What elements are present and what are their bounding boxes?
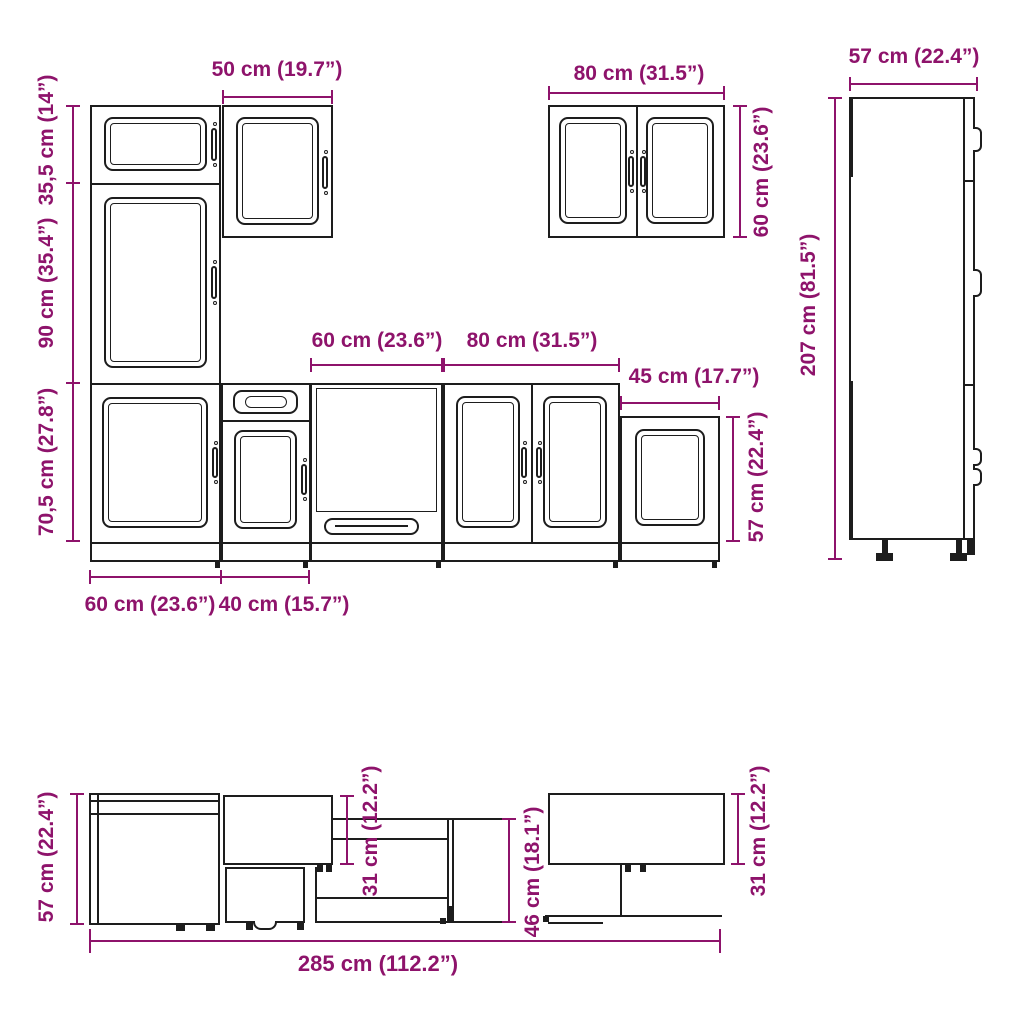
dim-line-285 xyxy=(89,940,721,942)
foot-mark xyxy=(246,923,253,930)
foot-mark xyxy=(440,918,446,924)
dim-label-31-mid: 31 cm (12.2”) xyxy=(359,766,383,897)
countertop-edge xyxy=(89,800,220,802)
front-edge-line xyxy=(315,897,447,899)
panel-line xyxy=(620,865,622,916)
dim-line-31-right xyxy=(737,793,739,865)
countertop-edge xyxy=(89,813,220,815)
plan-view: 57 cm (22.4”) 31 cm (12.2”) 46 cm (18.1”… xyxy=(0,0,1024,1024)
rail-line xyxy=(333,838,447,840)
dim-label-46: 46 cm (18.1”) xyxy=(521,807,545,938)
base-line xyxy=(315,921,447,923)
foot-mark xyxy=(176,925,185,931)
dim-label-57-plan: 57 cm (22.4”) xyxy=(35,792,59,923)
hinge-mark xyxy=(625,865,631,872)
dim-line-57-plan xyxy=(76,793,78,925)
panel-line xyxy=(315,867,317,923)
kitchen-cabinet-dimension-diagram: 50 cm (19.7”) 35,5 cm (14”) 90 cm (35.4”… xyxy=(0,0,1024,1024)
plan-deep-unit-46 xyxy=(447,818,510,923)
foot-mark xyxy=(297,923,304,930)
hinge-mark xyxy=(317,865,323,872)
plan-wall-cabinet-80 xyxy=(548,793,725,865)
dim-line-46 xyxy=(508,818,510,923)
hinge-mark xyxy=(640,865,646,872)
plan-base-cabinet-40 xyxy=(225,867,305,923)
plan-wall-cabinet-50 xyxy=(223,795,333,865)
hinge-mark xyxy=(326,865,332,872)
plan-handle xyxy=(253,921,277,930)
corner-mark xyxy=(448,906,454,921)
base-line xyxy=(545,915,722,917)
foot-mark xyxy=(206,925,215,931)
dim-line-31-mid xyxy=(346,795,348,865)
dim-label-31-right: 31 cm (12.2”) xyxy=(747,766,771,897)
side-panel-line xyxy=(97,793,99,925)
dim-label-285: 285 cm (112.2”) xyxy=(298,951,458,977)
base-line xyxy=(548,922,603,924)
